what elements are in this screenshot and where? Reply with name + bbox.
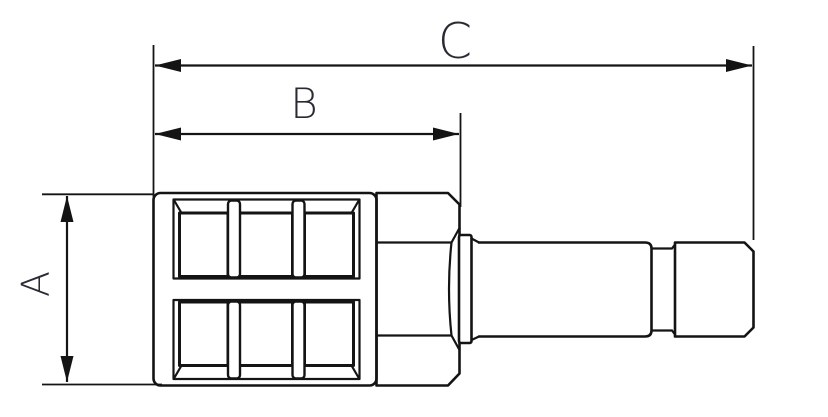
grip-rib: [293, 201, 305, 278]
grip-panel: [305, 213, 354, 277]
grip-panel: [180, 213, 229, 277]
dim-c-arrow-right: [726, 59, 752, 72]
technical-drawing-page: C B A: [0, 0, 828, 417]
dim-c-label: C: [438, 13, 472, 70]
grip-tray-bottom: [174, 300, 360, 379]
dim-a-label: A: [14, 271, 58, 297]
grip-panel: [240, 213, 293, 277]
shaft: [479, 243, 652, 337]
grip-tray-bottom-chamfers: [175, 366, 359, 378]
hex-flat-lines: [377, 243, 452, 336]
grip-rib: [228, 201, 240, 278]
grip-body: [154, 193, 377, 386]
grip-tray-top-chamfers: [175, 201, 359, 213]
collar: [459, 235, 472, 343]
dim-b-label: B: [290, 79, 318, 128]
grip-panel: [180, 302, 229, 366]
part-outline: [154, 193, 754, 386]
dimension-annotations: [42, 45, 754, 385]
dim-b-arrow-left: [155, 128, 181, 141]
dim-a-arrow-top: [61, 196, 74, 222]
dim-a-arrow-bottom: [61, 356, 74, 382]
grip-panel: [305, 302, 354, 366]
end-plug: [675, 243, 754, 337]
shaft-groove: [652, 245, 676, 335]
coupling-dimension-drawing: C B A: [0, 0, 828, 417]
dim-b-arrow-right: [433, 128, 459, 141]
grip-tray-top: [174, 200, 360, 279]
grip-rib: [293, 302, 305, 379]
hex-section: [377, 193, 460, 386]
grip-panel: [240, 302, 293, 366]
grip-rib: [228, 302, 240, 379]
dim-c-arrow-left: [155, 59, 181, 72]
